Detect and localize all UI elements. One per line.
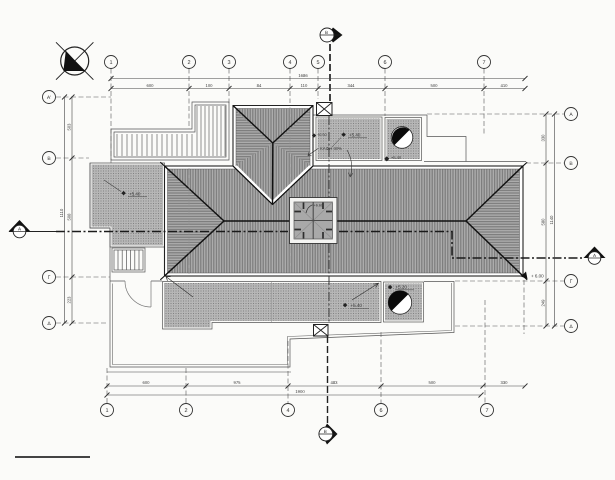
svg-text:3: 3 [227, 60, 230, 66]
svg-text:+6.60: +6.60 [314, 204, 324, 208]
svg-text:1686: 1686 [298, 73, 308, 78]
svg-text:975: 975 [234, 380, 242, 385]
svg-text:1900: 1900 [295, 389, 305, 394]
svg-text:A': A' [47, 95, 51, 101]
svg-text:+5.40: +5.40 [129, 192, 141, 197]
svg-text:+5.40: +5.40 [349, 133, 361, 138]
svg-text:5: 5 [316, 60, 319, 66]
svg-text:1: 1 [105, 408, 108, 414]
svg-text:344: 344 [348, 83, 356, 88]
svg-text:6: 6 [379, 408, 382, 414]
svg-text:+0.50: +0.50 [317, 133, 327, 137]
svg-text:410: 410 [501, 83, 509, 88]
svg-text:84: 84 [257, 83, 262, 88]
svg-text:7: 7 [485, 408, 488, 414]
svg-text:+5.40: +5.40 [391, 155, 402, 160]
svg-text:4: 4 [286, 408, 289, 414]
svg-text:2: 2 [184, 408, 187, 414]
svg-text:503: 503 [67, 123, 72, 131]
svg-text:1: 1 [109, 60, 112, 66]
svg-text:330: 330 [501, 380, 509, 385]
svg-text:483: 483 [331, 380, 339, 385]
svg-text:223: 223 [67, 296, 72, 304]
svg-text:1110: 1110 [59, 208, 64, 217]
svg-text:6: 6 [383, 60, 386, 66]
svg-text:600: 600 [143, 380, 151, 385]
svg-text:B: B [325, 30, 328, 35]
svg-text:500: 500 [431, 83, 439, 88]
svg-text:600: 600 [147, 83, 155, 88]
svg-text:B: B [324, 429, 327, 434]
svg-text:330: 330 [541, 134, 546, 142]
svg-text:110: 110 [301, 83, 308, 88]
svg-text:580: 580 [541, 218, 546, 226]
svg-text:+ 6.00: + 6.00 [531, 274, 544, 279]
svg-text:2: 2 [187, 60, 190, 66]
svg-text:+5.20: +5.20 [396, 285, 408, 290]
svg-text:500: 500 [429, 380, 437, 385]
svg-text:+5.40: +5.40 [351, 303, 363, 308]
svg-text:7: 7 [482, 60, 485, 66]
svg-text:Γ: Γ [570, 279, 573, 285]
svg-text:Γ: Γ [48, 275, 51, 281]
svg-text:508: 508 [67, 213, 72, 221]
svg-text:1140: 1140 [549, 215, 554, 225]
svg-text:100: 100 [206, 83, 214, 88]
svg-text:249: 249 [541, 299, 546, 307]
svg-text:ΚΛΙΣΗ 30%: ΚΛΙΣΗ 30% [320, 146, 342, 151]
svg-text:4: 4 [288, 60, 291, 66]
